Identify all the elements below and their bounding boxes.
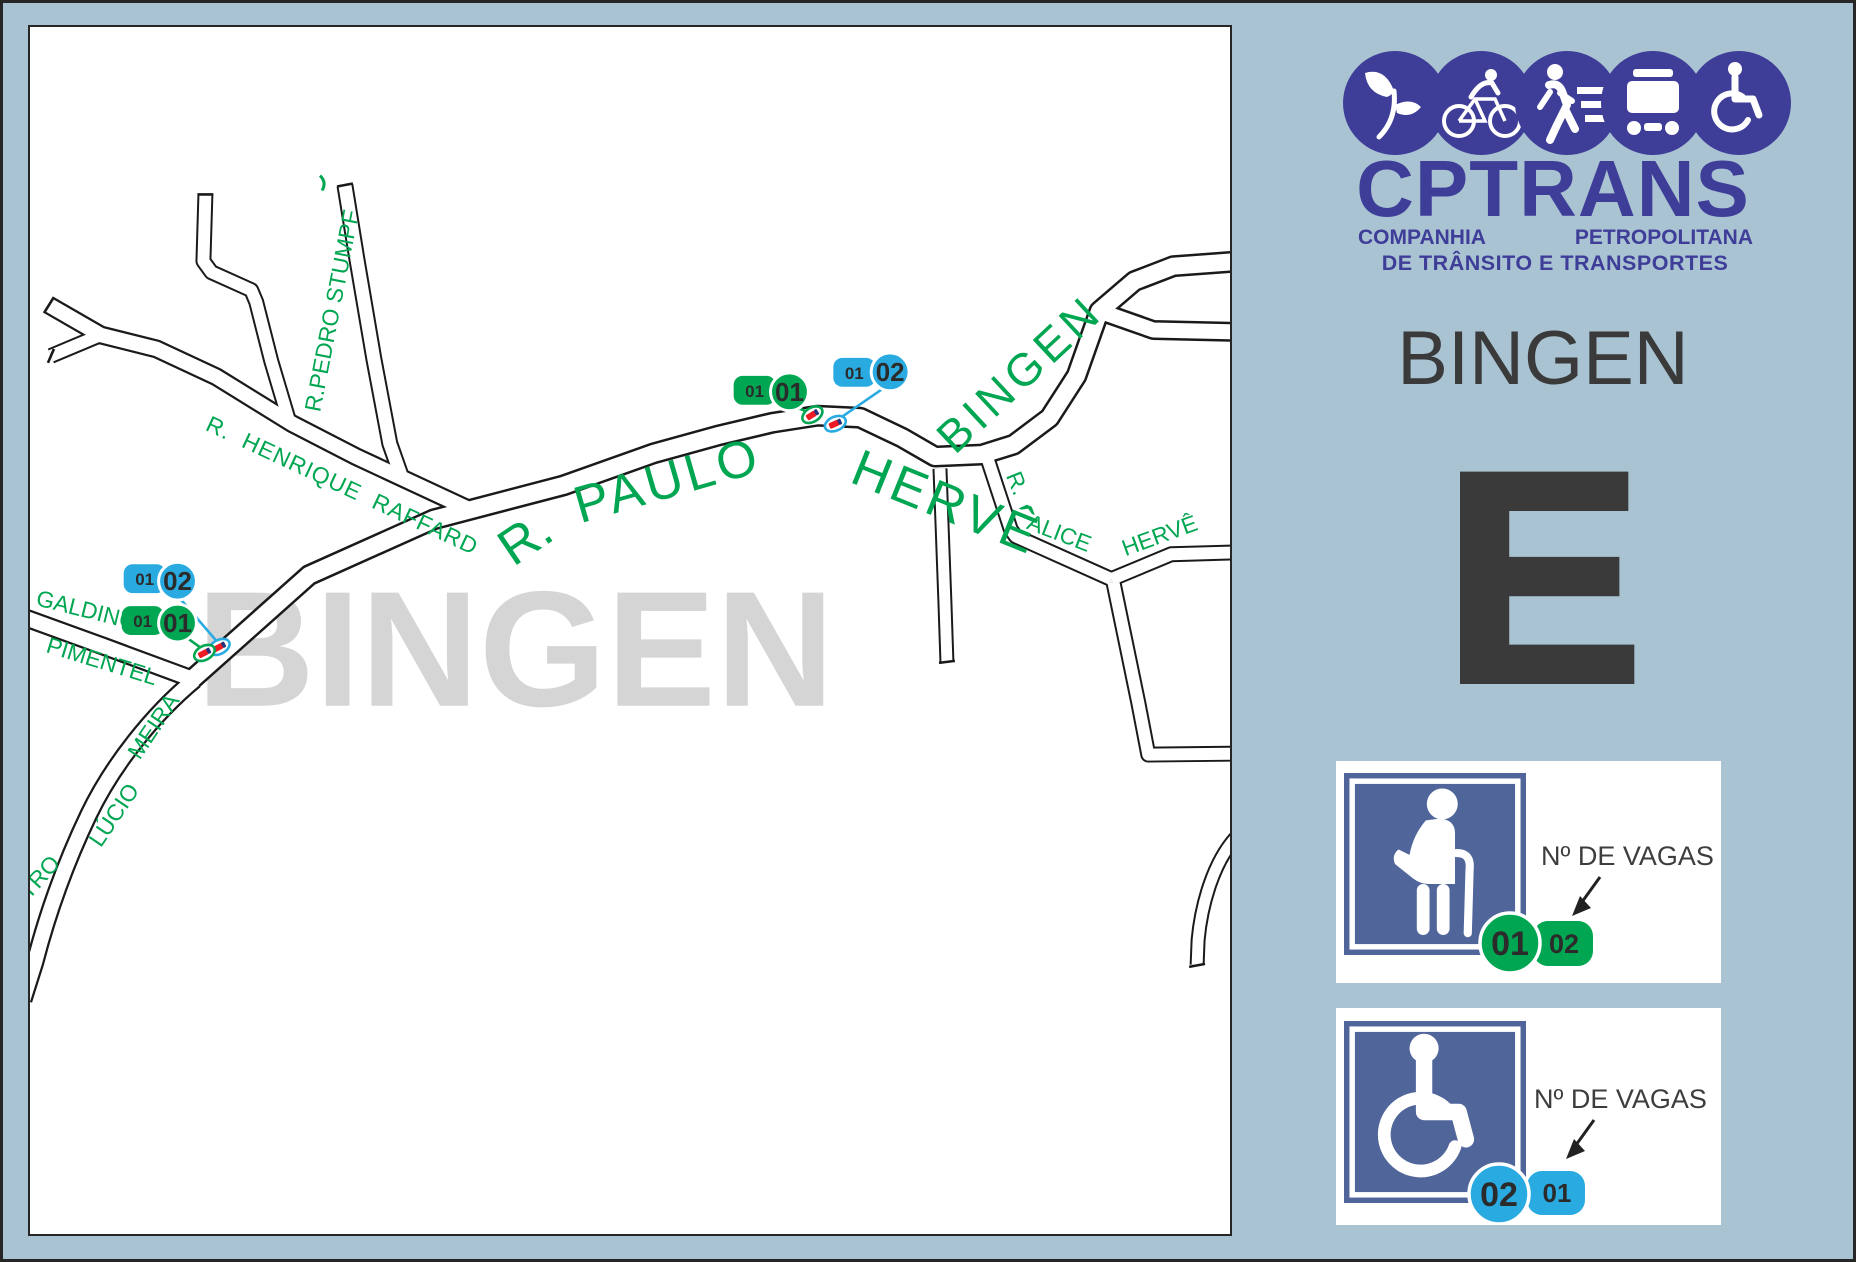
company-name: CPTRANS <box>1343 149 1763 229</box>
vagas-label: Nº DE VAGAS <box>1541 841 1714 871</box>
point-id-number: 01 <box>1491 925 1529 963</box>
spots-tag-number: 01 <box>133 612 152 631</box>
street-label-henrique-raffard: R. HENRIQUE RAFFARD <box>202 411 482 560</box>
street-labels: R.PEDRO STUMPF R. HENRIQUE RAFFARD R. PA… <box>30 176 1201 904</box>
subtitle-word-left: COMPANHIA <box>1358 227 1486 248</box>
point-badge-number: 02 <box>876 359 905 387</box>
spots-count-number: 01 <box>1543 1178 1572 1208</box>
map-panel: BINGEN <box>28 25 1232 1236</box>
point-badge-number: 01 <box>163 610 192 638</box>
spots-tag-number: 01 <box>845 364 864 383</box>
vagas-label: Nº DE VAGAS <box>1534 1084 1707 1114</box>
legend-card-wheelchair: Nº DE VAGAS 01 02 <box>1336 1008 1721 1225</box>
street-label-pedro-stumpf: R.PEDRO STUMPF <box>299 208 364 414</box>
arrow-icon <box>1572 877 1600 916</box>
label-fragment <box>320 176 324 191</box>
wheelchair-icon <box>1687 51 1791 155</box>
street-label-meira: MEIRA <box>122 688 185 763</box>
spots-tag-number: 01 <box>745 382 764 401</box>
point-id-number: 02 <box>1480 1176 1518 1214</box>
spots-tag-number: 01 <box>135 570 154 589</box>
company-logo <box>1339 47 1799 159</box>
company-subtitle: COMPANHIA PETROPOLITANA <box>1358 227 1753 248</box>
accessible-parking-map-poster: BINGEN <box>0 0 1856 1262</box>
arrow-icon <box>1566 1120 1594 1159</box>
spots-count-number: 02 <box>1549 929 1579 959</box>
point-badge-number: 02 <box>163 568 192 596</box>
subtitle-word-right: PETROPOLITANA <box>1575 227 1753 248</box>
legend-elderly-svg: Nº DE VAGAS 02 01 <box>1336 761 1721 983</box>
map-svg: BINGEN <box>30 27 1230 1234</box>
district-title: BINGEN <box>1343 321 1743 397</box>
company-subtitle-2: DE TRÂNSITO E TRANSPORTES <box>1355 253 1755 275</box>
legend-wheelchair-svg: Nº DE VAGAS 01 02 <box>1336 1008 1721 1225</box>
point-badge-number: 01 <box>775 379 804 407</box>
zone-letter: E <box>1343 427 1743 727</box>
legend-card-elderly: Nº DE VAGAS 02 01 <box>1336 761 1721 983</box>
